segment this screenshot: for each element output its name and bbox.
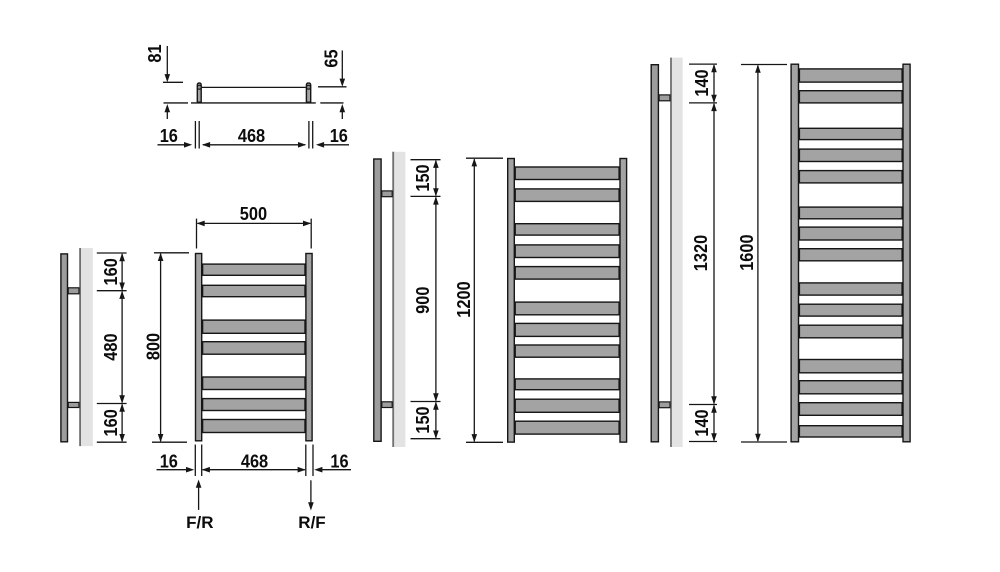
svg-text:468: 468	[241, 451, 268, 472]
svg-text:65: 65	[321, 49, 342, 67]
svg-text:16: 16	[330, 125, 348, 146]
svg-text:R/F: R/F	[298, 513, 325, 532]
svg-text:1200: 1200	[453, 281, 474, 317]
svg-text:150: 150	[412, 406, 433, 433]
svg-text:480: 480	[100, 333, 121, 360]
svg-text:F/R: F/R	[186, 513, 213, 532]
svg-text:468: 468	[238, 125, 265, 146]
svg-text:16: 16	[160, 451, 178, 472]
svg-text:140: 140	[691, 69, 712, 96]
svg-text:150: 150	[412, 164, 433, 191]
svg-text:160: 160	[100, 409, 121, 436]
svg-text:16: 16	[160, 125, 178, 146]
svg-text:16: 16	[330, 451, 348, 472]
svg-text:140: 140	[691, 409, 712, 436]
svg-text:500: 500	[240, 203, 267, 224]
svg-text:1600: 1600	[736, 234, 757, 270]
svg-text:81: 81	[144, 44, 165, 62]
svg-text:160: 160	[100, 258, 121, 285]
svg-text:1320: 1320	[690, 235, 711, 271]
svg-text:900: 900	[412, 287, 433, 314]
